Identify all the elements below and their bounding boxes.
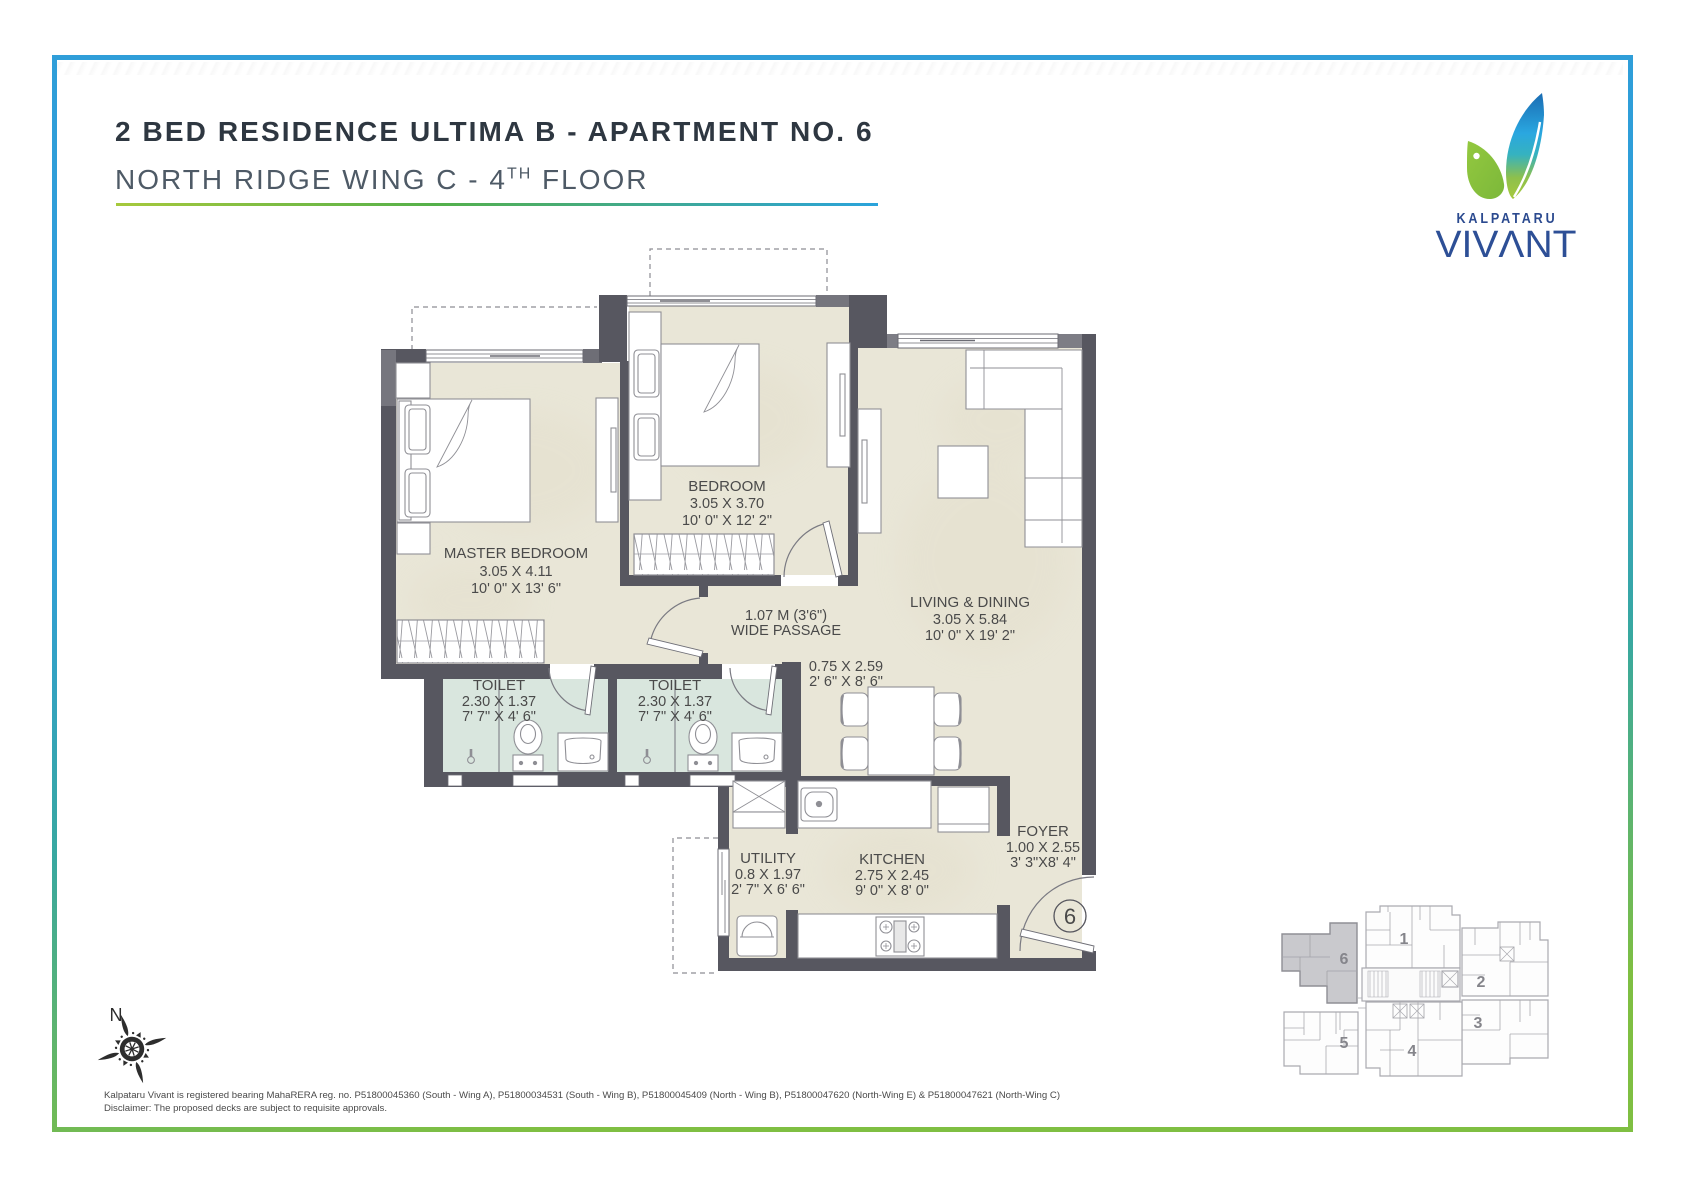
svg-text:10' 0" X 12' 2": 10' 0" X 12' 2" bbox=[682, 513, 772, 529]
svg-text:UTILITY: UTILITY bbox=[740, 850, 796, 867]
svg-text:WIDE PASSAGE: WIDE PASSAGE bbox=[731, 623, 841, 639]
svg-text:2' 6" X 8' 6": 2' 6" X 8' 6" bbox=[809, 674, 883, 690]
svg-text:3.05 X 5.84: 3.05 X 5.84 bbox=[933, 612, 1007, 628]
svg-text:1.07 M (3'6"): 1.07 M (3'6") bbox=[745, 608, 827, 624]
svg-text:3.05 X 3.70: 3.05 X 3.70 bbox=[690, 496, 764, 512]
svg-text:TOILET: TOILET bbox=[473, 677, 525, 694]
svg-text:4: 4 bbox=[1408, 1043, 1417, 1060]
svg-text:0.75 X 2.59: 0.75 X 2.59 bbox=[809, 659, 883, 675]
svg-text:2' 7" X 6' 6": 2' 7" X 6' 6" bbox=[731, 882, 805, 898]
svg-text:7' 7" X 4' 6": 7' 7" X 4' 6" bbox=[462, 709, 536, 725]
svg-text:2.75 X 2.45: 2.75 X 2.45 bbox=[855, 868, 929, 884]
svg-text:3.05 X 4.11: 3.05 X 4.11 bbox=[479, 564, 552, 580]
svg-text:10' 0" X 19' 2": 10' 0" X 19' 2" bbox=[925, 628, 1015, 644]
svg-text:2.30 X 1.37: 2.30 X 1.37 bbox=[638, 694, 712, 710]
svg-text:6: 6 bbox=[1064, 904, 1076, 929]
svg-text:9' 0" X 8' 0": 9' 0" X 8' 0" bbox=[855, 883, 929, 899]
svg-text:2.30 X 1.37: 2.30 X 1.37 bbox=[462, 694, 536, 710]
svg-text:3' 3"X8' 4": 3' 3"X8' 4" bbox=[1010, 855, 1076, 871]
svg-text:7' 7" X 4' 6": 7' 7" X 4' 6" bbox=[638, 709, 712, 725]
svg-text:5: 5 bbox=[1340, 1035, 1349, 1052]
svg-text:FOYER: FOYER bbox=[1017, 823, 1069, 840]
svg-text:3: 3 bbox=[1474, 1015, 1483, 1032]
svg-text:0.8 X 1.97: 0.8 X 1.97 bbox=[735, 867, 801, 883]
svg-text:1: 1 bbox=[1400, 931, 1409, 948]
svg-text:MASTER BEDROOM: MASTER BEDROOM bbox=[444, 545, 588, 562]
svg-text:LIVING & DINING: LIVING & DINING bbox=[910, 594, 1030, 611]
svg-text:1.00 X 2.55: 1.00 X 2.55 bbox=[1006, 840, 1080, 856]
svg-text:KITCHEN: KITCHEN bbox=[859, 851, 925, 868]
svg-text:TOILET: TOILET bbox=[649, 677, 701, 694]
svg-text:N: N bbox=[110, 1005, 123, 1025]
svg-text:2: 2 bbox=[1477, 974, 1486, 991]
svg-text:10' 0" X 13' 6": 10' 0" X 13' 6" bbox=[471, 581, 561, 597]
svg-text:BEDROOM: BEDROOM bbox=[688, 478, 766, 495]
svg-text:VIVΛNT: VIVΛNT bbox=[1436, 224, 1577, 266]
svg-text:6: 6 bbox=[1340, 951, 1349, 968]
